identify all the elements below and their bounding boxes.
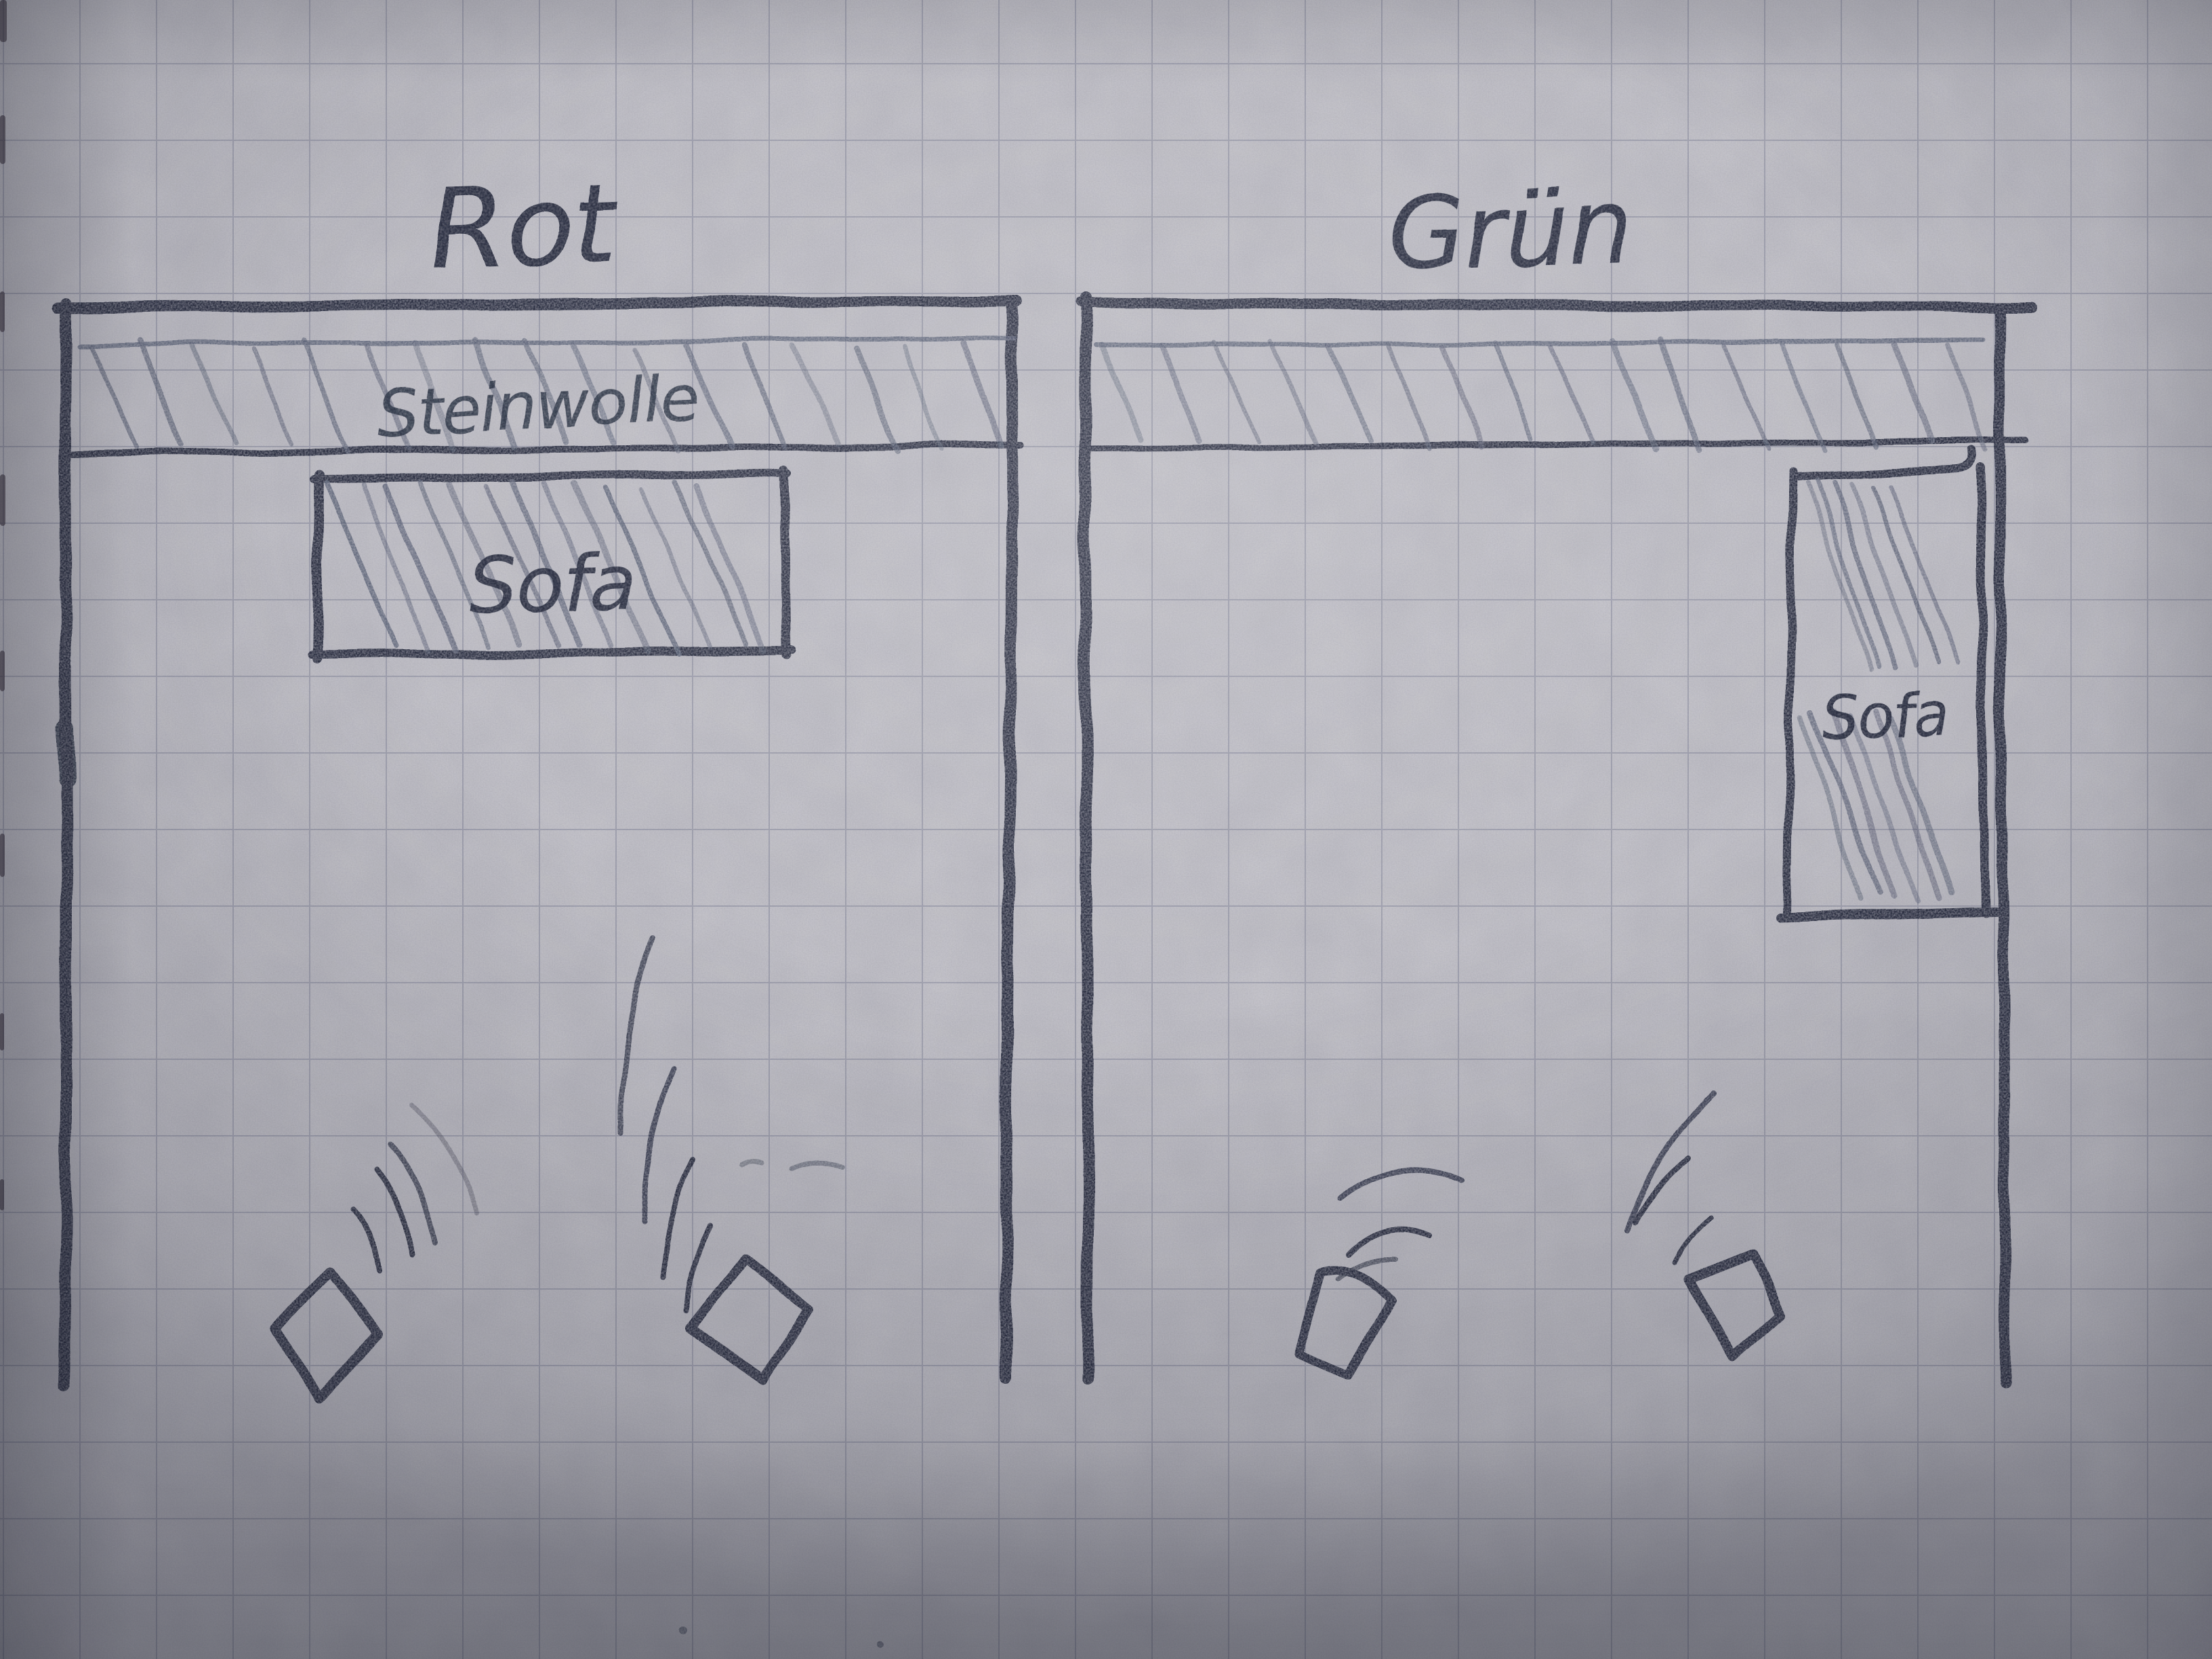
divider-wall-left — [1006, 306, 1012, 1378]
sofa-right-right-edge — [1979, 468, 1985, 912]
sofa-left-label: Sofa — [468, 538, 636, 632]
sofa-left-top-edge — [313, 474, 787, 478]
room-left-title: Rot — [427, 159, 622, 295]
room-left-wall-knot — [65, 729, 66, 779]
sketch-canvas: Rot Grün Steinwolle Sofa Sofa — [0, 0, 2212, 1659]
room-right-wall-top — [1080, 303, 2032, 307]
divider-wall-right — [1084, 298, 1088, 1379]
sofa-right-bottom-edge — [1781, 911, 1995, 918]
notebook-photo: Rot Grün Steinwolle Sofa Sofa — [0, 0, 2212, 1659]
sofa-left-bottom-edge — [310, 650, 792, 655]
paper-mottle-texture — [0, 0, 2212, 1659]
sofa-left-right-edge — [784, 470, 787, 655]
sofa-left-left-edge — [316, 474, 319, 659]
room-right-title: Grün — [1385, 168, 1633, 294]
room-left-wall-left — [64, 304, 67, 1384]
room-left-wall-top — [58, 300, 1017, 308]
sofa-right-label: Sofa — [1820, 680, 1949, 754]
